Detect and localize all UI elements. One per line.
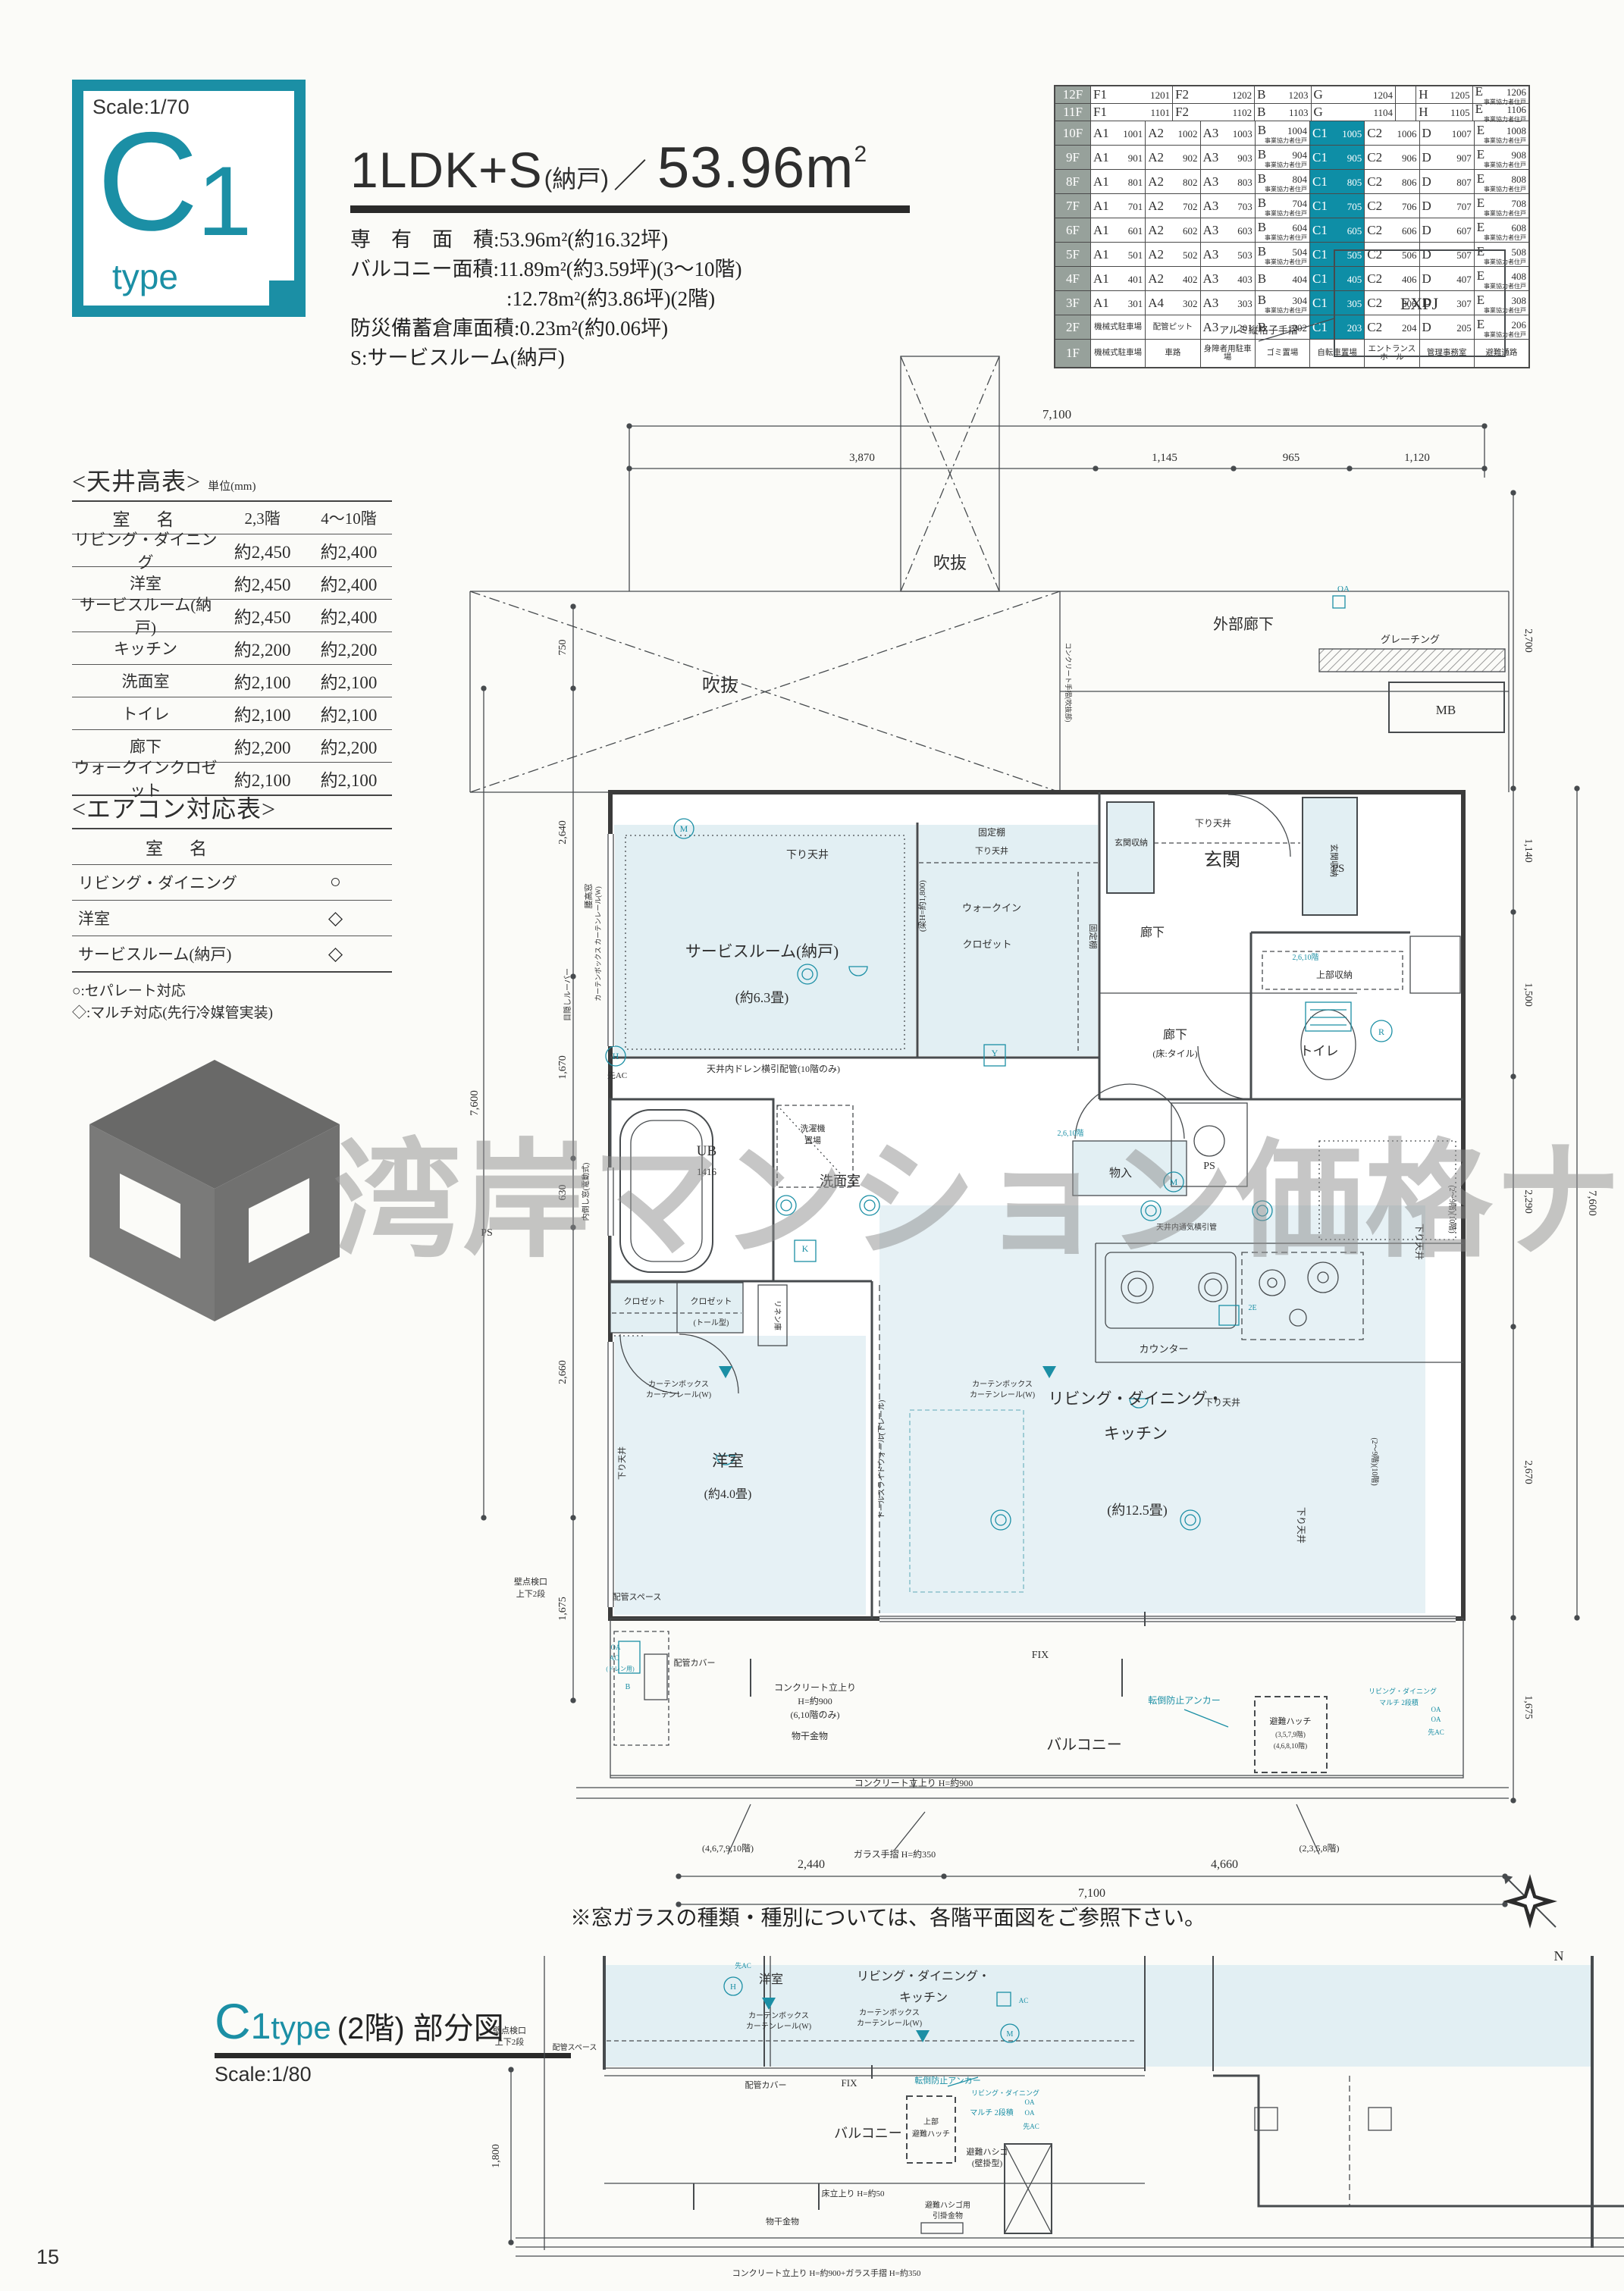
plan-label: (4,6,8,10階) [1274, 1742, 1307, 1750]
plan-label: 転倒防止アンカー [914, 2075, 981, 2086]
plan-label: 外部廊下 [1213, 616, 1274, 633]
plan-label: 玄関収納 [1115, 837, 1148, 848]
floorplan-page: Scale:1/70 C 1 type 1LDK+S (納戸) ／ 53.96m… [0, 0, 1624, 2291]
plan-label: 配管スペース [553, 2042, 597, 2052]
unit-cell: D707 [1420, 194, 1475, 218]
plan-label: OA [1431, 1706, 1441, 1713]
unit-cell: B1203 [1255, 86, 1311, 103]
area-sup: 2 [854, 142, 867, 168]
plan-label: カーテンレール(W) [970, 1390, 1035, 1399]
unit-cell: F11101 [1091, 104, 1173, 121]
plan-label: 2,440 [798, 1858, 825, 1871]
plan-label: 2,290 [1522, 1189, 1534, 1214]
plan-label: 洗面室 [820, 1174, 861, 1189]
unit-cell: C1905 [1310, 146, 1365, 169]
plan-label: クロゼット [691, 1296, 732, 1306]
plan-label: 天井内ドレン横引配管(10階のみ) [707, 1063, 840, 1074]
plan-label: 壁点検口 [493, 2025, 526, 2036]
plan-label: 7,100 [1078, 1887, 1105, 1900]
unit-cell: C2806 [1365, 170, 1419, 193]
plan-label: バルコニー [1046, 1737, 1122, 1754]
plan-label: (2,3,5,8階) [1300, 1842, 1340, 1854]
plan-type: 1LDK+S [350, 141, 543, 199]
plan-label: 1,675 [1522, 1695, 1534, 1719]
plan-label: (床:タイル) [1152, 1048, 1197, 1059]
plan-label: OA [1337, 585, 1350, 594]
unit-cell: A1801 [1091, 170, 1146, 193]
unit-table-row: 10F A11001 A21002 [1055, 121, 1528, 146]
plan-label: 3,870 [849, 452, 875, 464]
plan-label: 1,675 [557, 1597, 569, 1621]
unit-cell: A2702 [1146, 194, 1200, 218]
unit-cell: F21202 [1173, 86, 1255, 103]
plan-label: リビング・ダイニング [971, 2089, 1039, 2097]
plan-label: 廊下 [1140, 926, 1165, 939]
partial-type-word: type [271, 2010, 331, 2046]
plan-label: 転倒防止アンカー [1148, 1694, 1221, 1706]
plan-label: R [1378, 1026, 1384, 1037]
title-underline [350, 205, 910, 213]
unit-cell: C1705 [1310, 194, 1365, 218]
plan-label: 固定棚 [1088, 924, 1099, 949]
plan-label: 下り天井 [1296, 1507, 1306, 1544]
unit-cell: A1901 [1091, 146, 1146, 169]
floor-label: 8F [1055, 170, 1091, 193]
ceiling-row: サービスルーム(納戸) 約2,450 約2,400 [72, 600, 392, 632]
plan-label: OA [1025, 2098, 1035, 2106]
aircon-row: リビング・ダイニング ○ [72, 865, 392, 901]
aircon-table-title: <エアコン対応表> [72, 790, 392, 825]
plan-label: 腰高窓 [583, 884, 594, 909]
plan-label: H [730, 1982, 736, 1992]
plan-label: 1,120 [1404, 452, 1430, 464]
plan-label: AC [1019, 1997, 1029, 2004]
unit-cell: F21102 [1173, 104, 1255, 121]
plan-label: コンクリート立上り H=約900+ガラス手摺 H=約350 [732, 2267, 921, 2278]
plan-label: 洋室 [759, 1973, 783, 1986]
unit-cell: D1007 [1420, 121, 1475, 145]
type-digit: 1 [197, 152, 252, 250]
unit-cell: B904 事業協力者住戸 [1256, 146, 1310, 169]
plan-label: 配管スペース [613, 1591, 662, 1602]
plan-label: 物干金物 [766, 2216, 799, 2227]
plan-label: 2,6,10階 [1293, 953, 1319, 962]
unit-table-row: 9F A1901 A2902 [1055, 146, 1528, 170]
ceiling-height-table: <天井高表> 単位(mm) 室 名 2,3階 4〜10階 リビング・ダイニング … [72, 462, 392, 796]
plan-label: 1,145 [1152, 452, 1177, 464]
plan-label: カーテンボックス カーテンレール(W) [594, 886, 602, 1001]
unit-cell: C2706 [1365, 194, 1419, 218]
plan-label: 引掛金物 [933, 2211, 963, 2220]
plan-label: 先AC [735, 1961, 751, 1970]
plan-label: 上部 [923, 2117, 939, 2126]
plan-label: (2〜9階)(10階) [1370, 1437, 1379, 1485]
plan-label: 下り天井 [1204, 1397, 1240, 1408]
floor-label: 9F [1055, 146, 1091, 169]
plan-label: 避難ハッチ [912, 2129, 950, 2139]
plan-label: 2,700 [1522, 628, 1534, 653]
plan-label: M [680, 823, 688, 834]
plan-label: H=約900 [798, 1695, 832, 1706]
plan-label: FIX [1032, 1650, 1049, 1661]
partial-digit: 1 [251, 2006, 271, 2048]
aircon-legend: ○:セパレート対応 ◇:マルチ対応(先行冷媒管実装) [72, 980, 392, 1024]
floor-label: 7F [1055, 194, 1091, 218]
plan-label: FIX [842, 2077, 858, 2089]
plan-label: 750 [557, 640, 569, 656]
plan-label: 配管カバー [674, 1657, 716, 1668]
plan-label: 避難ハシゴ [967, 2146, 1008, 2157]
ceiling-table-title: <天井高表> 単位(mm) [72, 462, 392, 497]
plan-label: 1,500 [1522, 983, 1534, 1007]
type-letter: C [97, 112, 199, 252]
plan-label: 下り天井 [1195, 818, 1231, 829]
plan-label: PS [481, 1227, 493, 1239]
plan-label: トールスライドウォール(下レール) [877, 1400, 886, 1519]
plan-label: 965 [1283, 452, 1300, 464]
unit-cell: E1206 事業協力者住戸 [1473, 86, 1528, 103]
plan-label: (2〜9階)(10階) [1447, 1185, 1456, 1233]
plan-label: (6,10階のみ) [791, 1709, 840, 1720]
unit-cell: A2802 [1146, 170, 1200, 193]
plan-label: OA [1025, 2109, 1035, 2117]
plan-label: 1416 [697, 1166, 717, 1177]
aircon-header-row: 室 名 [72, 829, 392, 865]
plan-label: カウンター [1139, 1343, 1188, 1355]
unit-cell: E908 事業協力者住戸 [1475, 146, 1528, 169]
plan-label: 下り天井 [1414, 1224, 1425, 1260]
unit-cell: A11001 [1091, 121, 1146, 145]
floor-label: 12F [1055, 86, 1091, 103]
partial-letter: C [215, 1992, 251, 2050]
unit-cell: A31003 [1201, 121, 1256, 145]
plan-label: (3,5,7,9階) [1275, 1731, 1306, 1738]
plan-label: カーテンボックス [648, 1380, 709, 1389]
logo-corner-square [269, 280, 306, 317]
plan-label: (4,6,7,9,10階) [702, 1842, 754, 1854]
page-number: 15 [36, 2246, 59, 2269]
plan-label: 2,640 [557, 820, 569, 845]
plan-label: 避難ハッチ [1270, 1716, 1312, 1726]
plan-label: 吹抜 [702, 675, 738, 696]
plan-label: コンクリート立上り [774, 1681, 856, 1693]
type-word: type [112, 256, 178, 297]
plan-label: M [1170, 1177, 1178, 1187]
plan-label: 天井内通気横引管 [1156, 1222, 1217, 1232]
unit-cell: B1004 事業協力者住戸 [1256, 121, 1310, 145]
plan-label: クロゼット [962, 939, 1011, 950]
plan-label: (約6.3畳) [735, 990, 789, 1006]
plan-label: B [625, 1683, 631, 1691]
plan-label: (ドレン用) [606, 1666, 635, 1672]
type-logo: Scale:1/70 C 1 type [72, 80, 306, 317]
plan-label: ガラス手摺 H=約350 [854, 1848, 936, 1860]
plan-label: Y [992, 1048, 999, 1058]
plan-label: 固定棚 [978, 826, 1005, 838]
unit-cell: H1205 [1416, 86, 1472, 103]
unit-table-row: 7F A1701 A2702 [1055, 194, 1528, 218]
plan-label: ウォークイン [962, 902, 1021, 914]
plan-label: PS [1203, 1161, 1215, 1172]
plan-label: 7,100 [1042, 407, 1071, 422]
unit-cell: B704 事業協力者住戸 [1256, 194, 1310, 218]
unit-cell: H1105 [1416, 104, 1472, 121]
ceiling-row: キッチン 約2,200 約2,200 [72, 632, 392, 665]
plan-label: 物入 [1109, 1167, 1132, 1180]
plan-label: 目隠しルーバー [563, 968, 572, 1021]
unit-cell: G1104 [1312, 104, 1396, 121]
unit-table-row: 11F F11101 F21102 [1055, 104, 1528, 121]
plan-label: EXPJ [1400, 294, 1439, 313]
unit-cell: B1103 [1255, 104, 1311, 121]
plan-label: 7,600 [1586, 1190, 1598, 1216]
unit-cell: F11201 [1091, 86, 1173, 103]
unit-cell: E708 事業協力者住戸 [1475, 194, 1528, 218]
plan-label: (トール型) [694, 1318, 729, 1327]
plan-label: H [613, 1051, 619, 1061]
area-value: 53.96m [657, 135, 854, 201]
partial-floorplan-svg: 洋室リビング・ダイニング・キッチンカーテンボックスカーテンレール(W)カーテンボ… [425, 1956, 1624, 2291]
main-floorplan-svg: EXPJアルミ縦格子手摺吹抜吹抜外部廊下グレーチングMBOAコンクリート手摺(吹… [425, 227, 1624, 2108]
watermark-cube-logo [89, 1060, 340, 1321]
unit-cell: A1701 [1091, 194, 1146, 218]
title-slash: ／ [613, 149, 647, 197]
unit-cell: A3703 [1201, 194, 1256, 218]
plan-label: 1,140 [1522, 838, 1534, 863]
plan-label: M [1007, 2030, 1014, 2039]
unit-cell: D907 [1420, 146, 1475, 169]
ceiling-row: リビング・ダイニング 約2,450 約2,400 [72, 534, 392, 567]
plan-label: 2,670 [1522, 1460, 1534, 1484]
unit-table-row: 12F F11201 F21202 [1055, 86, 1528, 104]
plan-label: リビング・ダイニング [1368, 1687, 1437, 1695]
plan-label: 先AC [1023, 2122, 1039, 2130]
plan-label: 壁点検口 [514, 1576, 547, 1587]
plan-label: 下り天井 [616, 1446, 627, 1480]
unit-cell: A3803 [1201, 170, 1256, 193]
plan-label: 吹抜 [933, 553, 967, 572]
ceiling-row: トイレ 約2,100 約2,100 [72, 697, 392, 730]
plan-label: リネン庫 [773, 1300, 782, 1330]
unit-cell: E1106 事業協力者住戸 [1473, 104, 1528, 121]
plan-label: キッチン [899, 1992, 948, 2004]
plan-label: 先AC [607, 1070, 627, 1080]
plan-label: 物干金物 [792, 1730, 828, 1741]
plan-label: カーテンレール(W) [646, 1390, 711, 1399]
unit-cell: B804 事業協力者住戸 [1256, 170, 1310, 193]
plan-label: カーテンボックス [972, 1380, 1033, 1389]
unit-cell: G1204 [1312, 86, 1396, 103]
plan-label: カーテンレール(W) [857, 2019, 922, 2028]
plan-label: アルミ縦格子手摺 [1219, 324, 1298, 336]
plan-label: (約12.5畳) [1107, 1503, 1168, 1518]
plan-label: 下り天井 [975, 845, 1008, 856]
aircon-row: サービスルーム(納戸) ◇ [72, 936, 392, 971]
plan-label: 上部収納 [1316, 969, 1353, 980]
ceiling-row: 洗面室 約2,100 約2,100 [72, 665, 392, 697]
plan-label: サービスルーム(納戸) [685, 942, 839, 961]
unit-cell: E808 事業協力者住戸 [1475, 170, 1528, 193]
unit-cell: D807 [1420, 170, 1475, 193]
plan-label: キッチン [1104, 1424, 1168, 1443]
plan-label: 7,600 [469, 1090, 481, 1116]
partial-floorplan: 洋室リビング・ダイニング・キッチンカーテンボックスカーテンレール(W)カーテンボ… [425, 1956, 1624, 2291]
plan-label: バルコニー [834, 2126, 902, 2141]
unit-cell: C1805 [1310, 170, 1365, 193]
plan-label: 630 [557, 1185, 569, 1201]
unit-table-row: 8F A1801 A2802 [1055, 170, 1528, 194]
plan-label: 配管カバー [745, 2079, 787, 2090]
plan-label: OA [1431, 1716, 1441, 1723]
plan-label: PS [1332, 863, 1345, 875]
plan-label: 2E [1248, 1304, 1256, 1312]
main-floorplan: EXPJアルミ縦格子手摺吹抜吹抜外部廊下グレーチングMBOAコンクリート手摺(吹… [425, 227, 1624, 2108]
glass-note: ※窓ガラスの種類・種別については、各階平面図をご参照下さい。 [570, 1901, 1205, 1932]
unit-cell [1396, 104, 1416, 121]
unit-cell [1396, 86, 1416, 103]
plan-label: AC [610, 1654, 619, 1662]
plan-label: 1,670 [557, 1055, 569, 1080]
plan-label: 2,6,10階 [1058, 1129, 1084, 1138]
plan-label: 上下2段 [495, 2036, 525, 2047]
plan-label: 洋室 [712, 1452, 744, 1470]
plan-label: K [802, 1243, 809, 1254]
plan-label: リビング・ダイニング・ [857, 1970, 990, 1983]
plan-label: 上下2段 [516, 1588, 546, 1599]
plan-label: 内倒し窓(電動式) [581, 1163, 591, 1221]
plan-label: 玄関 [1204, 850, 1240, 870]
plan-label: マルチ 2段積 [1379, 1698, 1419, 1706]
plan-label: 先AC [1428, 1728, 1444, 1736]
plan-label: 1,800 [491, 2144, 502, 2168]
unit-cell: A2902 [1146, 146, 1200, 169]
unit-cell: A3903 [1201, 146, 1256, 169]
plan-label: カーテンボックス [859, 2008, 920, 2017]
plan-label: 4,660 [1211, 1858, 1238, 1871]
plan-label: (梁H=約1,800) [917, 880, 927, 932]
plan-label: 下り天井 [786, 849, 829, 861]
plan-label: 廊下 [1163, 1028, 1187, 1042]
unit-cell: E1008 事業協力者住戸 [1475, 121, 1528, 145]
plan-label: コンクリート立上り H=約900 [854, 1777, 973, 1788]
plan-label: トイレ [1300, 1044, 1339, 1058]
plan-label: 置場 [804, 1136, 821, 1145]
plan-label: カーテンボックス [748, 2011, 809, 2020]
unit-cell: A21002 [1146, 121, 1200, 145]
plan-label: カーテンレール(W) [746, 2022, 811, 2031]
plan-label: (壁掛型) [972, 2158, 1003, 2168]
plan-label: リビング・ダイニング・ [1049, 1390, 1224, 1408]
aircon-table: <エアコン対応表> 室 名 リビング・ダイニング ○ 洋室 ◇ [72, 790, 392, 1024]
plan-label: UB [697, 1143, 716, 1159]
plan-label: マルチ 2段積 [970, 2108, 1014, 2117]
plan-label: クロゼット [624, 1296, 666, 1306]
plan-label: 洗濯機 [801, 1123, 826, 1133]
plan-label: 床立上り H=約50 [822, 2188, 885, 2199]
plan-label: OA [611, 1644, 621, 1651]
plan-label: MB [1436, 703, 1456, 717]
plan-label: コンクリート手摺(吹抜部) [1064, 643, 1073, 722]
plan-paren: (納戸) [544, 160, 609, 195]
unit-cell: C2906 [1365, 146, 1419, 169]
aircon-row: 洋室 ◇ [72, 901, 392, 936]
unit-cell: C11005 [1310, 121, 1365, 145]
plan-label: (約4.0畳) [704, 1487, 752, 1501]
plan-label: グレーチング [1381, 634, 1440, 645]
floor-label: 10F [1055, 121, 1091, 145]
plan-label: 2,660 [557, 1360, 569, 1384]
plan-label: 避難ハシゴ用 [925, 2200, 970, 2210]
unit-cell: C21006 [1365, 121, 1419, 145]
floor-label: 11F [1055, 104, 1091, 121]
